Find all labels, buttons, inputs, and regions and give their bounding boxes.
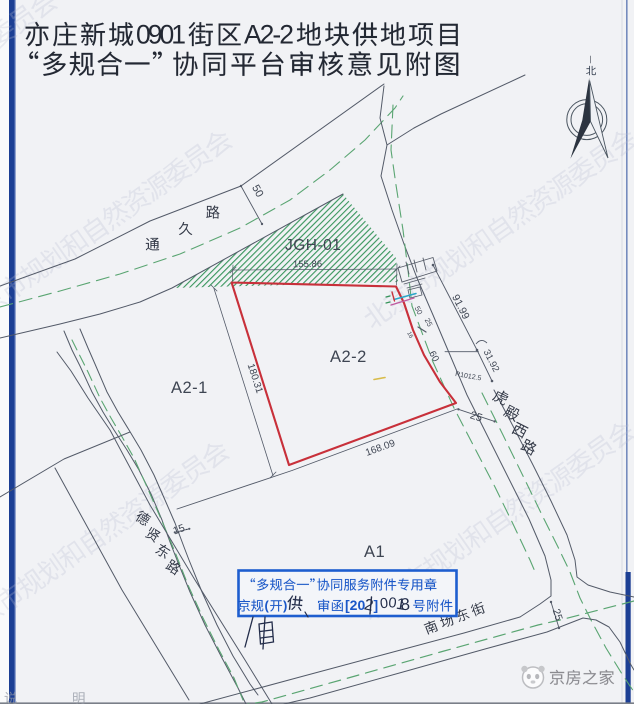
svg-text:A2-2: A2-2: [244, 20, 294, 50]
svg-text:155.86: 155.86: [293, 259, 322, 271]
svg-text:): ): [283, 598, 287, 613]
svg-text:(: (: [265, 598, 270, 613]
svg-text:]: ]: [374, 597, 379, 613]
svg-text:A1: A1: [364, 543, 385, 561]
svg-text:0901: 0901: [136, 20, 186, 50]
svg-text:JGH-01: JGH-01: [285, 237, 341, 254]
svg-text:A2-1: A2-1: [171, 379, 208, 397]
svg-text:A2-2: A2-2: [330, 348, 367, 366]
svg-text:8: 8: [400, 595, 411, 615]
